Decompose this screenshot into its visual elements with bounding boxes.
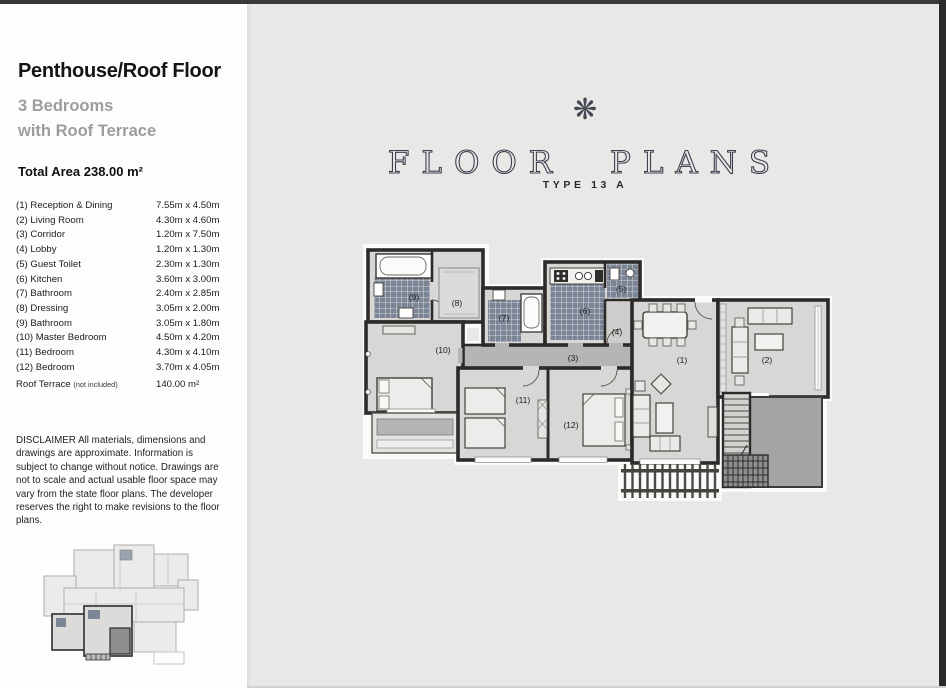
window-marker [366, 352, 371, 357]
room-row: (9) Bathroom3.05m x 1.80m [16, 317, 234, 332]
room-row: (1) Reception & Dining7.55m x 4.50m [16, 199, 234, 214]
bed-icon [465, 388, 505, 448]
room-label-10: (10) [435, 345, 450, 355]
room-name: (11) Bedroom [16, 346, 156, 361]
room-dressing-8 [439, 268, 479, 318]
room-name: (2) Living Room [16, 214, 156, 229]
dresser-icon [383, 326, 415, 334]
window-icon [475, 457, 531, 463]
room-label-7: (7) [499, 313, 510, 323]
toilet-icon [610, 268, 619, 280]
floor-plan: (1) (2) (3) (4) (5) (6) (7) (8) (9) (10)… [363, 242, 833, 504]
entrance-door-gap [695, 298, 712, 303]
room-name: (3) Corridor [16, 228, 156, 243]
roof-terrace-row: Roof Terrace (not included) 140.00 m² [16, 378, 234, 392]
side-table-icon [635, 381, 645, 391]
page-subtitle: 3 Bedrooms with Roof Terrace [18, 94, 238, 144]
coffee-table-icon [755, 334, 783, 350]
door-gap [523, 366, 539, 371]
room-row: (10) Master Bedroom4.50m x 4.20m [16, 331, 234, 346]
coffee-table-icon [656, 403, 673, 433]
wardrobe-icon [538, 400, 547, 438]
room-name: (1) Reception & Dining [16, 199, 156, 214]
room-name: (5) Guest Toilet [16, 258, 156, 273]
washbasin-icon [493, 290, 505, 300]
key-plan-unit-stair [86, 654, 110, 660]
room-label-11: (11) [516, 395, 531, 405]
room-dims: 4.30m x 4.60m [156, 214, 234, 229]
toilet-icon [399, 308, 413, 318]
room-label-8: (8) [452, 298, 463, 308]
room-label-1: (1) [677, 355, 688, 365]
room-label-2: (2) [762, 355, 773, 365]
bathtub-icon [521, 294, 542, 332]
master-balcony [372, 413, 458, 453]
room-bathroom-7 [483, 288, 545, 345]
key-plan-unit-bath [56, 618, 66, 627]
room-row: (12) Bedroom3.70m x 4.05m [16, 361, 234, 376]
key-plan-wet-room [120, 550, 132, 560]
room-dims: 4.30m x 4.10m [156, 346, 234, 361]
brochure-page: { "page": {"background": "#e9e8e6", "edg… [0, 0, 946, 688]
room-dims: 3.05m x 2.00m [156, 302, 234, 317]
side-table-icon [735, 318, 744, 327]
total-area: Total Area 238.00 m² [18, 164, 143, 179]
room-label-6: (6) [580, 306, 591, 316]
tv-unit-icon [708, 407, 717, 437]
key-plan-unit-kitchen [88, 610, 100, 619]
room-name: (6) Kitchen [16, 273, 156, 288]
room-label-12: (12) [563, 420, 578, 430]
roof-terrace-value: 140.00 m² [156, 378, 234, 392]
site-key-plan [34, 542, 204, 668]
room-dims: 3.70m x 4.05m [156, 361, 234, 376]
room-name: (9) Bathroom [16, 317, 156, 332]
room-label-9: (9) [409, 292, 420, 302]
room-row: (6) Kitchen3.60m x 3.00m [16, 273, 234, 288]
room-dims: 1.20m x 7.50m [156, 228, 234, 243]
stove-icon [554, 270, 568, 282]
page-right-edge [939, 0, 946, 688]
room-dimensions-list: (1) Reception & Dining7.55m x 4.50m(2) L… [16, 199, 234, 375]
trellis [723, 455, 768, 487]
room-living [718, 300, 828, 398]
room-name: (8) Dressing [16, 302, 156, 317]
room-dims: 3.05m x 1.80m [156, 317, 234, 332]
plan-type-label: TYPE 13 A [247, 179, 923, 191]
side-table-icon [735, 376, 744, 385]
room-row: (7) Bathroom2.40m x 2.85m [16, 287, 234, 302]
room-label-4: (4) [612, 327, 623, 337]
window-marker [366, 390, 371, 395]
room-dims: 1.20m x 1.30m [156, 243, 234, 258]
room-row: (2) Living Room4.30m x 4.60m [16, 214, 234, 229]
room-master-bedroom [366, 322, 463, 416]
room-label-3: (3) [568, 353, 579, 363]
washbasin-icon [374, 283, 383, 296]
room-dims: 2.30m x 1.30m [156, 258, 234, 273]
room-name: (4) Lobby [16, 243, 156, 258]
roof-terrace-label: Roof Terrace [16, 379, 71, 390]
sidebar: Penthouse/Roof Floor 3 Bedrooms with Roo… [0, 4, 247, 688]
window-icon [559, 457, 607, 463]
room-label-5: (5) [616, 284, 627, 294]
key-plan-unit-terrace [110, 628, 130, 654]
room-dims: 4.50m x 4.20m [156, 331, 234, 346]
room-name: (7) Bathroom [16, 287, 156, 302]
door-gap [601, 366, 617, 371]
subtitle-line-2: with Roof Terrace [18, 119, 238, 144]
room-dims: 2.40m x 2.85m [156, 287, 234, 302]
window-icon [640, 459, 700, 465]
washbasin-icon [626, 269, 634, 277]
appliance-icon [595, 270, 603, 282]
room-row: (3) Corridor1.20m x 7.50m [16, 228, 234, 243]
window-wall [720, 304, 726, 392]
page-title: Penthouse/Roof Floor [18, 60, 238, 83]
room-name: (10) Master Bedroom [16, 331, 156, 346]
room-guest-toilet [605, 264, 640, 300]
room-row: (4) Lobby1.20m x 1.30m [16, 243, 234, 258]
bed-icon [583, 394, 625, 446]
room-dims: 3.60m x 3.00m [156, 273, 234, 288]
room-row: (11) Bedroom4.30m x 4.10m [16, 346, 234, 361]
florette-icon: ❋ [247, 94, 923, 126]
room-corridor [460, 345, 635, 368]
room-reception-dining [632, 298, 718, 465]
room-dims: 7.55m x 4.50m [156, 199, 234, 214]
floor-plan-area: (1) (2) (3) (4) (5) (6) (7) (8) (9) (10)… [363, 242, 833, 504]
disclaimer-text: DISCLAIMER All materials, dimensions and… [16, 434, 223, 528]
subtitle-line-1: 3 Bedrooms [18, 94, 238, 119]
room-name: (12) Bedroom [16, 361, 156, 376]
roof-terrace-note: (not included) [73, 380, 117, 389]
floor-plans-title-text: FLOOR PLANS [388, 145, 782, 181]
room-row: (5) Guest Toilet2.30m x 1.30m [16, 258, 234, 273]
bed-icon [377, 378, 432, 411]
room-row: (8) Dressing3.05m x 2.00m [16, 302, 234, 317]
